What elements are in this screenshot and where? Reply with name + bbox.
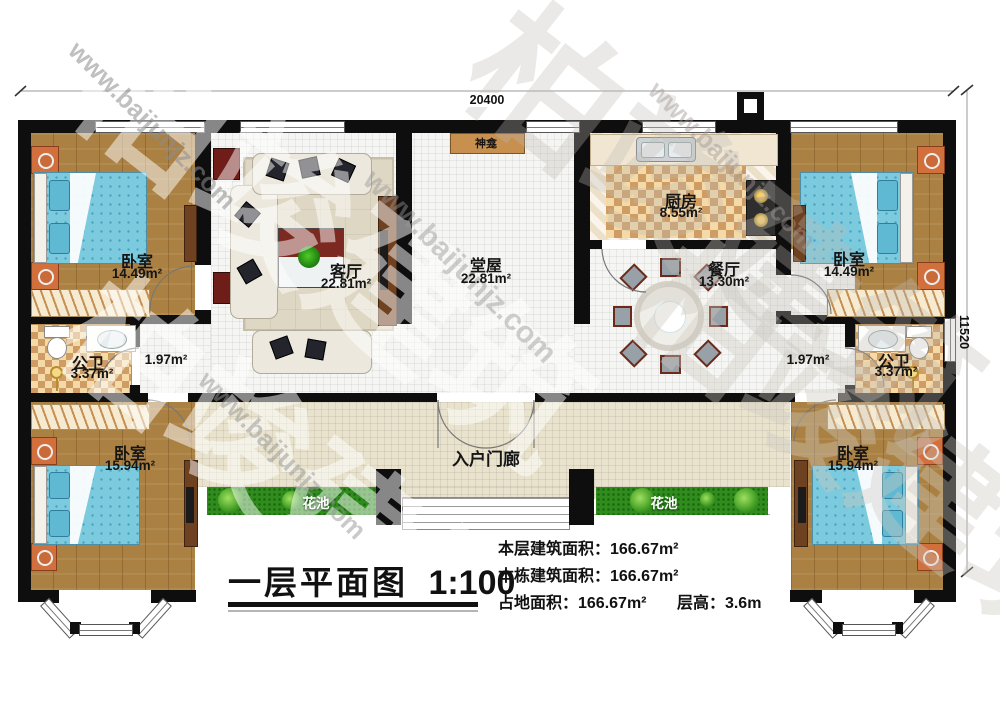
stat-footprint-row: 占地面积：166.67m² 层高：3.6m [498,590,761,617]
area-bedroom-bl: 15.94m² [105,458,155,473]
area-bedroom-br: 15.94m² [828,458,878,473]
area-hall: 22.81m² [461,271,511,286]
area-corridor-l: 1.97m² [145,352,188,367]
label-flower-l: 花池 [303,492,330,512]
stat-footprint: 占地面积：166.67m² [498,595,647,612]
area-bedroom-tl: 14.49m² [112,266,162,281]
dimension-right: 11520 [957,300,971,364]
title-underline-thick [228,602,478,607]
label-flower-r: 花池 [651,492,678,512]
area-dining: 13.30m² [699,274,749,289]
door-arc-kitchen [602,249,646,292]
label-porch: 入户门廊 [452,445,520,470]
area-kitchen: 8.55m² [660,205,703,220]
door-arc-bedroom-tr [791,275,831,314]
door-arc-bedroom-br [794,400,836,442]
area-corridor-r: 1.97m² [787,352,830,367]
floor-plan-canvas: 柏竣建筑 柏竣建筑 柏竣建筑 柏竣建筑 www.baijunjz.com www… [0,0,1000,706]
area-living: 22.81m² [321,276,371,291]
area-bedroom-tr: 14.49m² [824,264,874,279]
stat-floor-area: 本层建筑面积：166.67m² [498,536,761,563]
area-bath-r: 3.37m² [875,364,918,379]
title-underline-thin [228,610,478,612]
door-arc-main-right [486,400,534,448]
page-title: 一层平面图 [228,564,408,601]
title-block: 一层平面图 1:100 [228,556,515,604]
stat-storey-height: 层高：3.6m [677,595,761,612]
door-arc-bedroom-bl [148,400,190,442]
area-bath-l: 3.37m² [71,366,114,381]
stat-building-area: 本栋建筑面积：166.67m² [498,563,761,590]
dimension-top: 20400 [467,93,508,107]
stats-block: 本层建筑面积：166.67m² 本栋建筑面积：166.67m² 占地面积：166… [498,536,761,617]
label-shrine: 神龛 [475,135,497,151]
door-arc-main-left [438,400,486,448]
